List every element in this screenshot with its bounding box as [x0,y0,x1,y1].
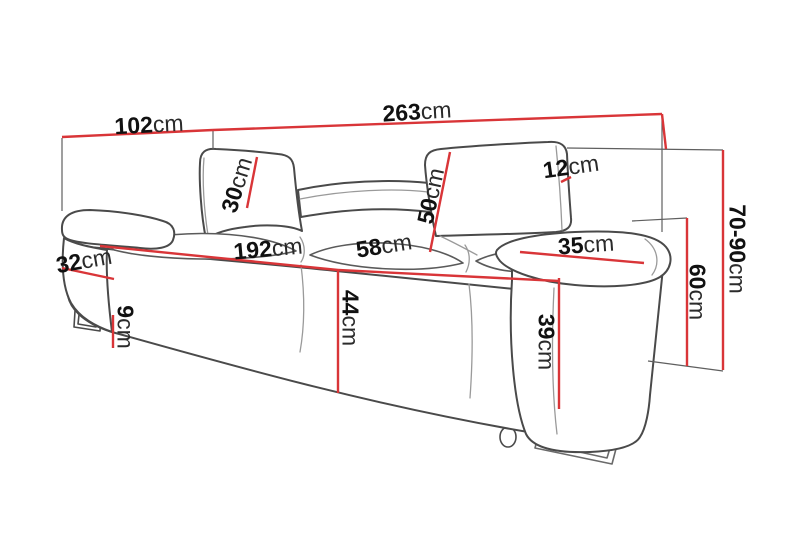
dim-label-armrest-front-height: 39cm [535,314,558,370]
sofa-outline [62,142,671,464]
dim-label-armrest-top-width: 35cm [557,232,615,259]
extension-armrest-top [632,218,687,221]
sofa-dimension-diagram: 102cm 263cm 12cm 30cm 50cm 192cm 58cm 35… [0,0,800,533]
right-armrest [496,232,671,453]
extension-floor [648,361,723,371]
dim-label-armrest-height: 60cm [686,264,709,320]
dim-label-width-overall: 263cm [382,98,452,125]
dim-label-seat-height: 44cm [339,290,362,346]
diagram-canvas [0,0,800,533]
dim-label-depth-overall: 102cm [114,112,184,139]
dim-label-total-height: 70-90cm [726,204,749,294]
backrest-bar [298,181,431,217]
dim-label-seat-width: 192cm [233,235,304,264]
dim-label-leg-height: 9cm [114,305,137,348]
